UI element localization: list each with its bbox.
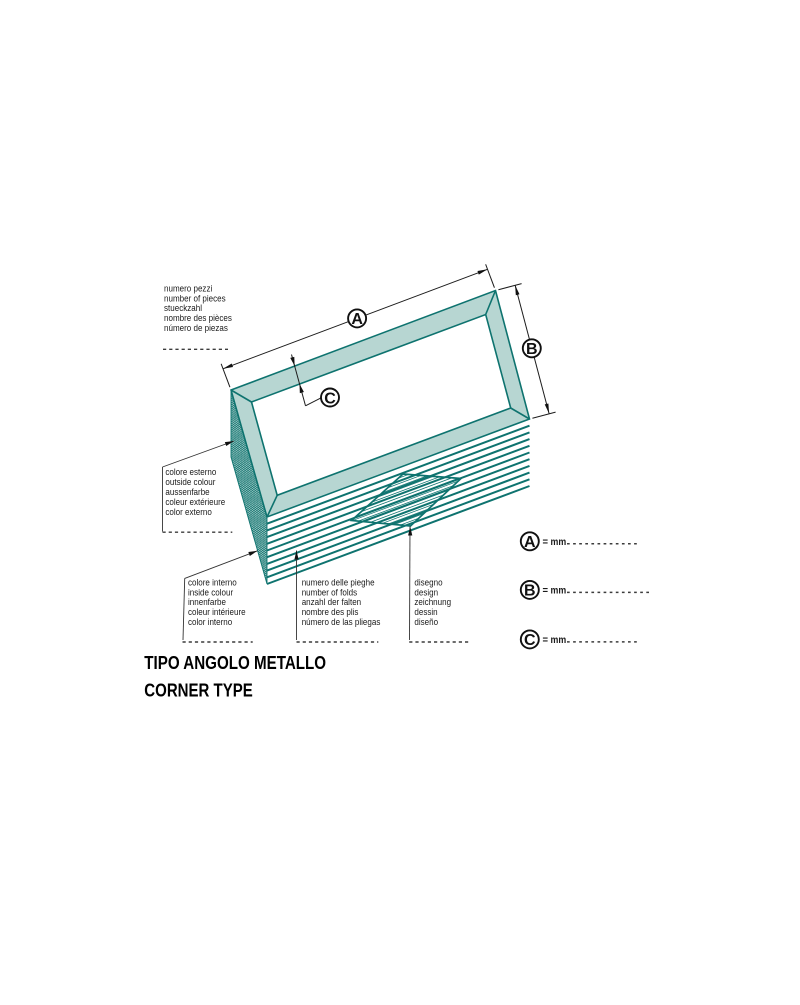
svg-text:mm: mm [551, 585, 567, 597]
svg-text:=: = [543, 536, 549, 548]
svg-text:TIPO ANGOLO METALLO: TIPO ANGOLO METALLO [144, 653, 326, 674]
svg-text:diseño: diseño [414, 616, 438, 627]
svg-text:color interno: color interno [188, 616, 232, 627]
svg-text:CORNER TYPE: CORNER TYPE [144, 680, 252, 701]
svg-text:A: A [351, 311, 363, 328]
svg-text:número de las pliegas: número de las pliegas [302, 616, 381, 627]
svg-text:C: C [324, 390, 336, 407]
svg-text:número de piezas: número de piezas [164, 322, 228, 333]
svg-text:A: A [524, 534, 536, 551]
svg-text:mm: mm [551, 634, 567, 646]
svg-text:B: B [526, 341, 538, 358]
svg-text:mm: mm [551, 536, 567, 548]
svg-text:B: B [524, 583, 536, 600]
svg-text:=: = [543, 635, 549, 647]
svg-text:color externo: color externo [165, 506, 212, 517]
svg-text:=: = [543, 585, 549, 597]
svg-text:C: C [524, 632, 536, 649]
